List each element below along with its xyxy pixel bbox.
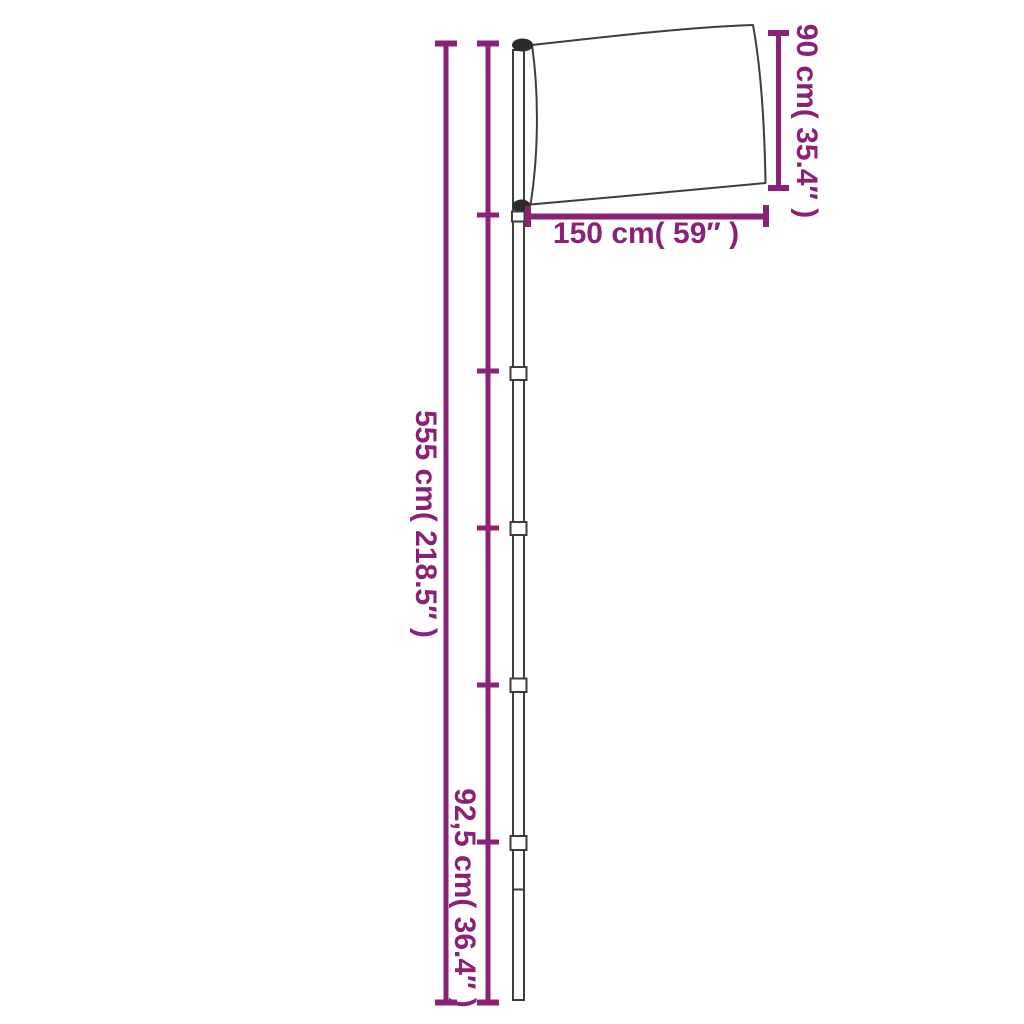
pole-collar-joint bbox=[511, 679, 527, 693]
pole-height-label: 555 cm( 218.5″ ) bbox=[408, 410, 442, 638]
pole-collar-joint bbox=[511, 367, 527, 380]
pole-collar-joint bbox=[511, 836, 527, 850]
pole-top-cap-clip bbox=[512, 39, 533, 52]
flagpole-diagram-art bbox=[0, 0, 1024, 1024]
halyard-cleat bbox=[512, 212, 525, 222]
product-dimension-diagram: 555 cm( 218.5″ ) 92,5 cm( 36.4″ ) 150 cm… bbox=[0, 0, 1024, 1024]
flag bbox=[531, 25, 766, 205]
flag-width-label: 150 cm( 59″ ) bbox=[553, 217, 739, 251]
flag-height-label: 90 cm( 35.4″ ) bbox=[789, 24, 823, 218]
flagpole bbox=[511, 39, 534, 1001]
pole-collar-joint bbox=[511, 522, 527, 535]
section-height-label: 92,5 cm( 36.4″ ) bbox=[447, 788, 481, 1008]
flag-height-dimension-line bbox=[768, 33, 789, 188]
